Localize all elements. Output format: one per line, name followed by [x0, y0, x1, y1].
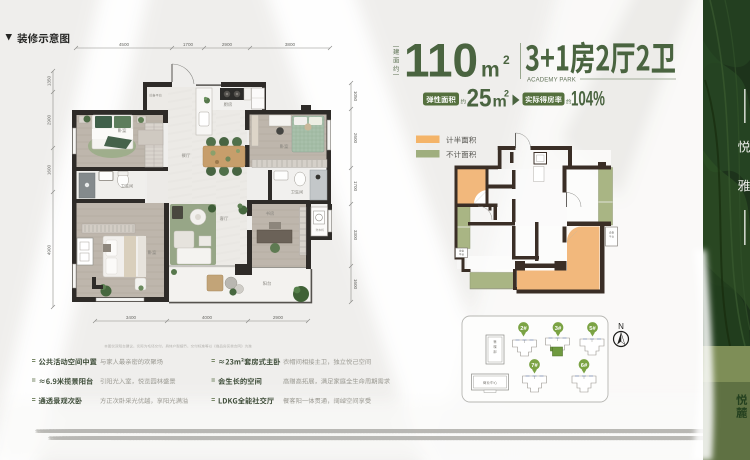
svg-text:1700: 1700: [183, 42, 194, 47]
svg-text:5#: 5#: [589, 326, 596, 332]
svg-text:3800: 3800: [285, 42, 296, 47]
svg-text:N: N: [618, 322, 624, 331]
svg-text:25: 25: [467, 85, 492, 113]
svg-text:3#: 3#: [555, 326, 562, 332]
svg-text:3400: 3400: [126, 315, 137, 320]
svg-text:2600: 2600: [353, 133, 358, 144]
svg-text:1600: 1600: [47, 164, 52, 175]
svg-text:3300: 3300: [353, 230, 358, 241]
svg-text:2900: 2900: [47, 114, 52, 125]
svg-text:4500: 4500: [119, 42, 130, 47]
svg-text:2900: 2900: [222, 42, 233, 47]
svg-text:4900: 4900: [47, 244, 52, 255]
svg-text:7#: 7#: [531, 363, 538, 369]
svg-text:ACADEMY PARK: ACADEMY PARK: [527, 78, 576, 84]
svg-text:2: 2: [504, 89, 509, 99]
svg-text:m: m: [481, 59, 500, 82]
svg-text:6#: 6#: [581, 363, 588, 369]
svg-text:110: 110: [404, 34, 478, 87]
svg-text:2: 2: [503, 53, 510, 67]
svg-text:1050: 1050: [353, 91, 358, 102]
svg-text:2#: 2#: [520, 326, 527, 332]
svg-text:1350: 1350: [47, 75, 52, 86]
svg-text:1600: 1600: [353, 279, 358, 290]
svg-text:104%: 104%: [571, 88, 605, 111]
svg-text:2900: 2900: [273, 315, 284, 320]
svg-text:4000: 4000: [202, 315, 213, 320]
svg-text:1700: 1700: [353, 181, 358, 192]
